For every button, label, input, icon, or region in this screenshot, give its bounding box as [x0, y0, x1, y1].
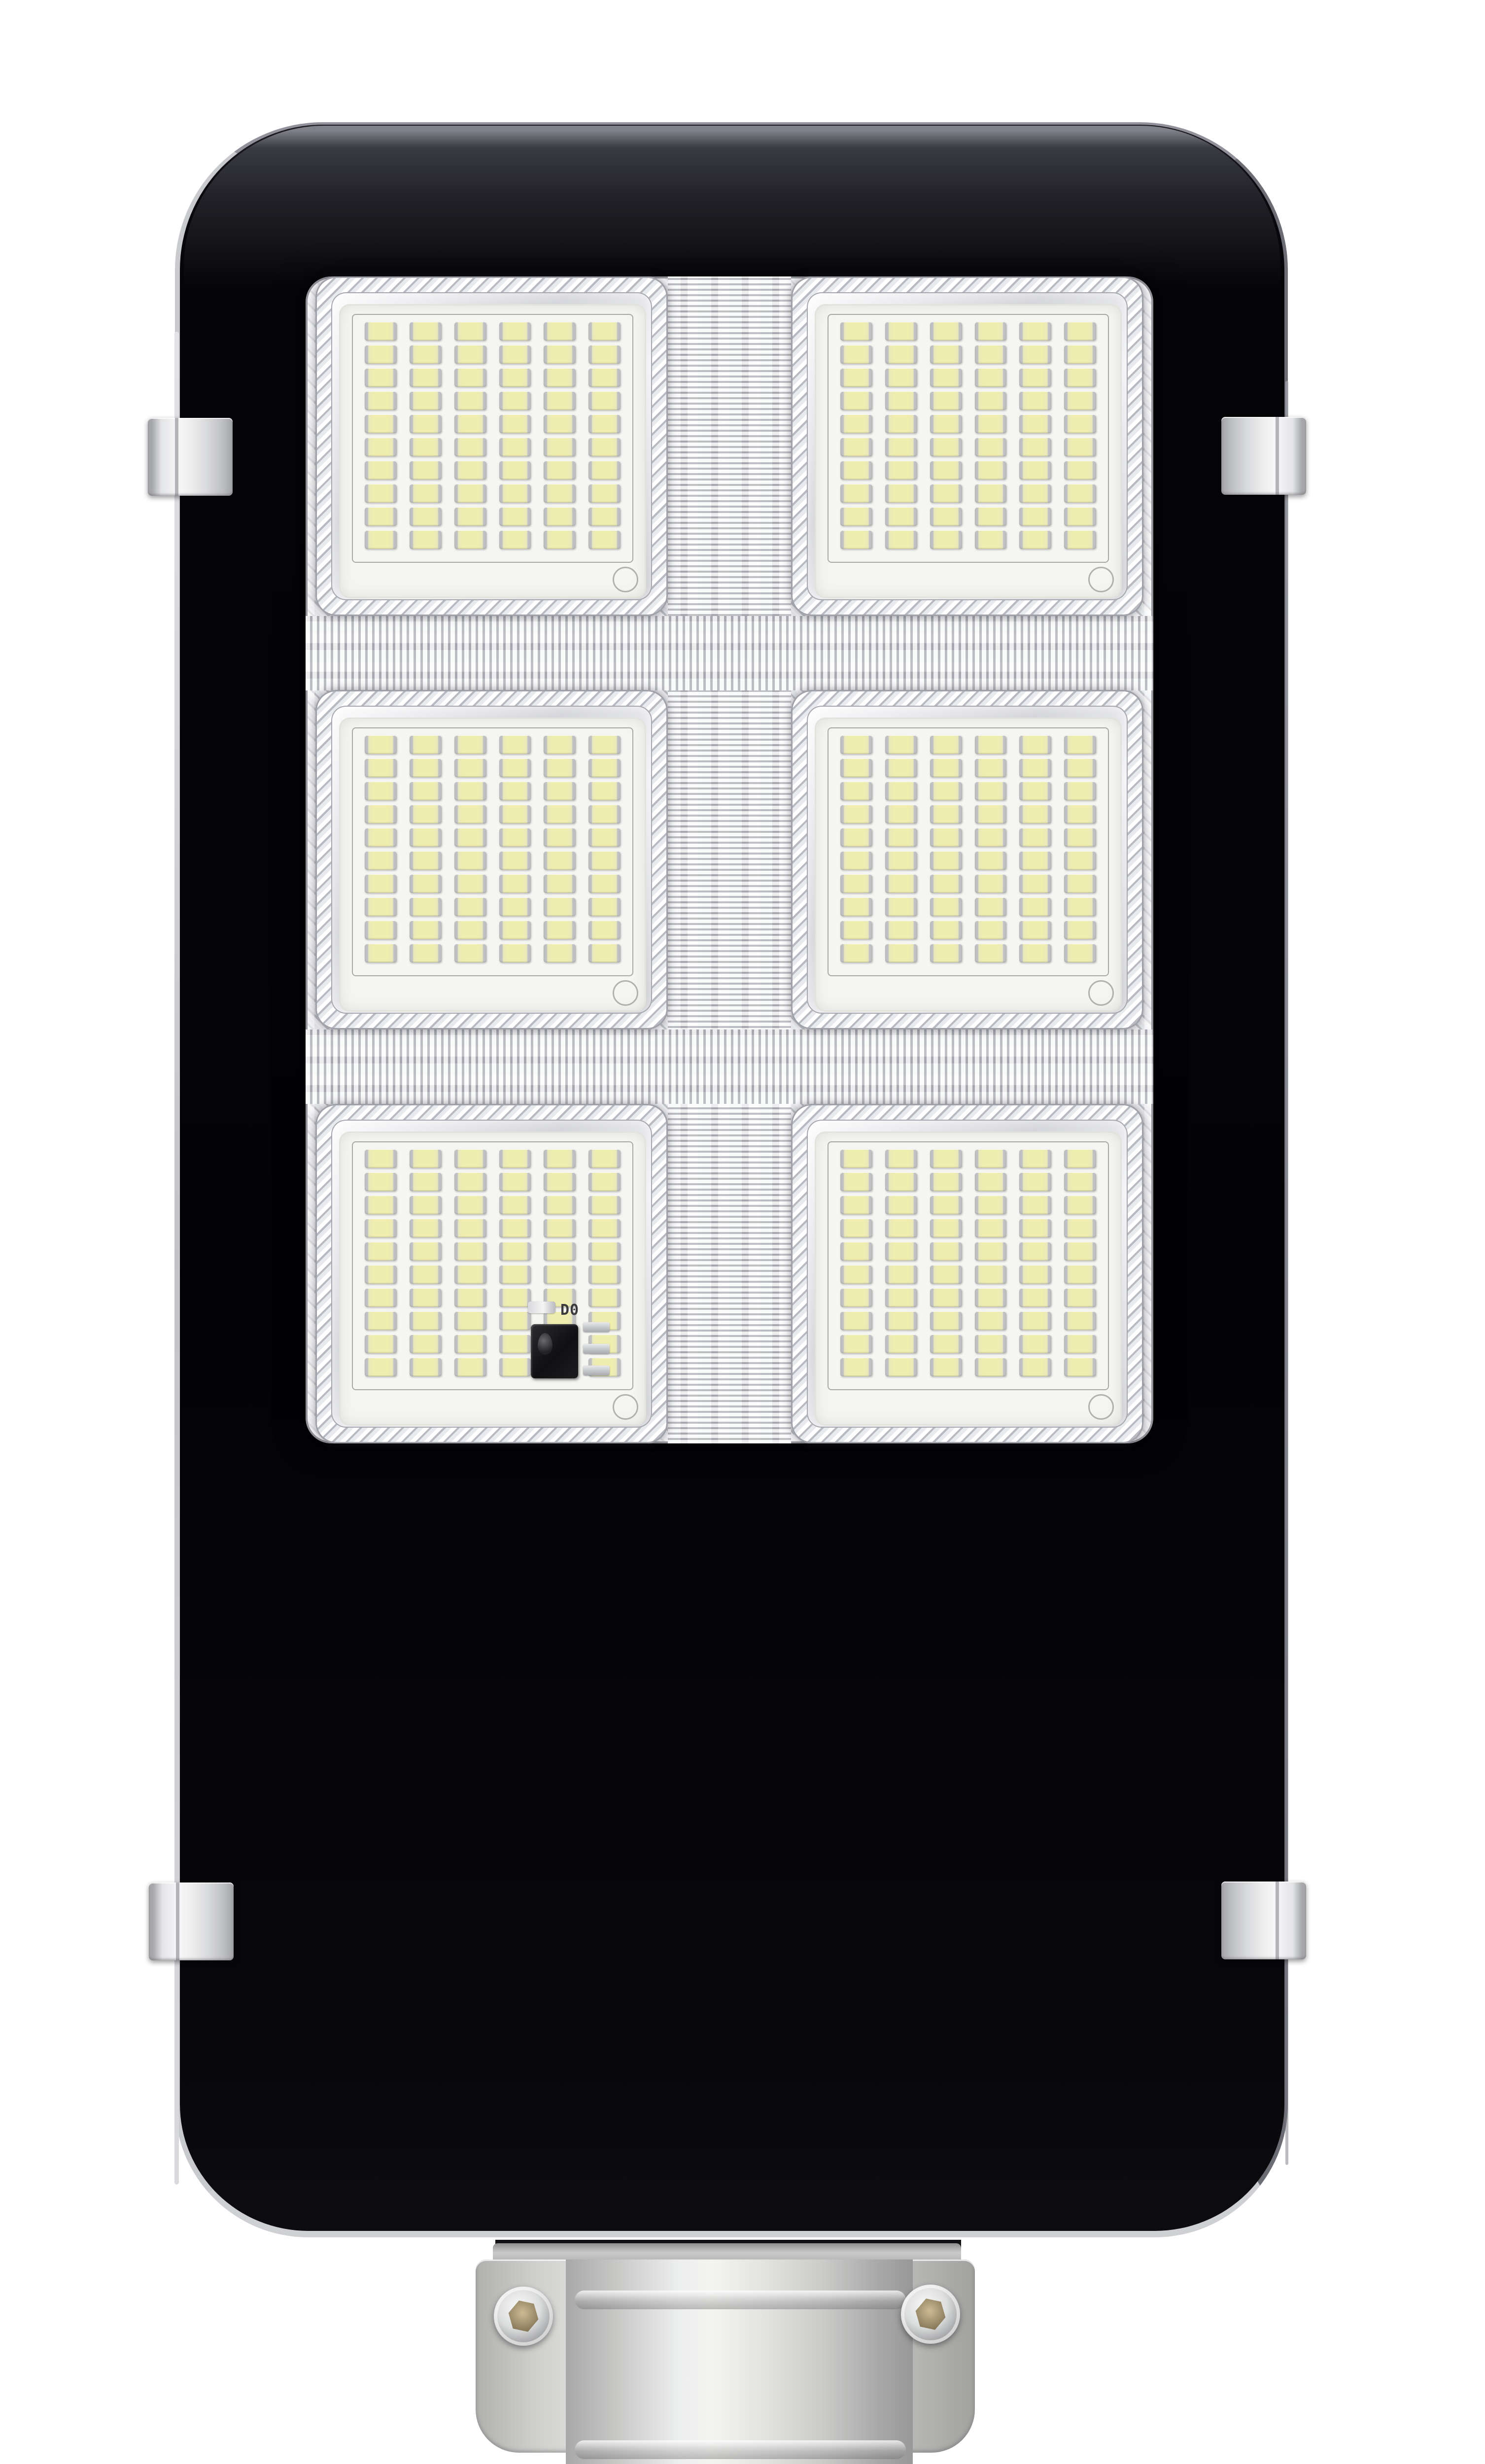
led-chip — [1019, 897, 1051, 916]
led-chip — [588, 1172, 621, 1191]
led-chip — [1064, 322, 1096, 341]
led-chip — [975, 944, 1007, 962]
led-chip — [544, 735, 576, 754]
led-chip — [1019, 1288, 1051, 1307]
led-chip — [588, 1196, 621, 1214]
pcb-mounting-hole — [1088, 1394, 1114, 1420]
led-chip — [930, 461, 962, 479]
led-chip — [544, 1149, 576, 1168]
hex-screw-top-right — [901, 2285, 960, 2344]
led-chip — [544, 805, 576, 823]
led-chip — [840, 391, 872, 410]
led-chip — [885, 782, 917, 800]
led-chip — [588, 414, 621, 433]
led-chip — [840, 345, 872, 364]
led-chip — [454, 1149, 486, 1168]
led-chip — [885, 1288, 917, 1307]
led-chip — [544, 461, 576, 479]
led-chip — [499, 1311, 531, 1330]
led-chip — [1019, 851, 1051, 870]
led-chip — [840, 735, 872, 754]
led-chip — [410, 1335, 442, 1353]
led-chip — [840, 414, 872, 433]
led-chip — [975, 735, 1007, 754]
led-chip — [1064, 414, 1096, 433]
led-chip — [410, 735, 442, 754]
led-chip — [975, 1172, 1007, 1191]
led-chip — [454, 1265, 486, 1284]
led-chip — [588, 758, 621, 777]
led-chip — [454, 897, 486, 916]
led-chip — [975, 782, 1007, 800]
led-chip — [1064, 1358, 1096, 1376]
led-chip — [365, 1311, 397, 1330]
led-chip — [499, 874, 531, 893]
led-chip — [975, 1311, 1007, 1330]
led-chip — [1019, 507, 1051, 526]
led-chip — [975, 921, 1007, 939]
led-chip — [454, 530, 486, 549]
led-chip — [499, 484, 531, 503]
led-chip — [499, 735, 531, 754]
led-chip — [975, 1288, 1007, 1307]
led-chip — [588, 391, 621, 410]
led-pcb — [815, 1131, 1122, 1426]
led-chip — [365, 438, 397, 456]
led-chip — [975, 1196, 1007, 1214]
led-chip — [365, 368, 397, 387]
led-chip — [885, 414, 917, 433]
led-chip — [588, 851, 621, 870]
led-chip — [410, 874, 442, 893]
led-chip — [930, 391, 962, 410]
led-chip — [544, 507, 576, 526]
led-chip — [1064, 1149, 1096, 1168]
led-chip — [885, 345, 917, 364]
led-chip — [975, 874, 1007, 893]
led-chip — [499, 1335, 531, 1353]
led-chip — [930, 897, 962, 916]
led-chip — [454, 944, 486, 962]
led-chip — [930, 1172, 962, 1191]
led-chip — [930, 921, 962, 939]
led-chip — [499, 758, 531, 777]
led-chip — [365, 391, 397, 410]
led-chip — [1064, 1172, 1096, 1191]
led-chip — [975, 1265, 1007, 1284]
led-chip — [885, 1265, 917, 1284]
led-chip — [930, 1288, 962, 1307]
led-chip — [454, 1335, 486, 1353]
led-chip — [840, 1242, 872, 1261]
led-chip — [499, 782, 531, 800]
led-chip — [454, 345, 486, 364]
led-chip — [365, 414, 397, 433]
led-chip — [840, 507, 872, 526]
led-chip — [930, 414, 962, 433]
led-chip — [499, 1288, 531, 1307]
led-chip — [588, 368, 621, 387]
led-chip — [499, 1172, 531, 1191]
led-chip — [1064, 1311, 1096, 1330]
led-chip — [885, 1335, 917, 1353]
led-chip — [365, 897, 397, 916]
led-chip — [454, 322, 486, 341]
pcb-mounting-hole — [1088, 980, 1114, 1006]
led-chip — [454, 391, 486, 410]
module-divider-vertical — [668, 276, 791, 1443]
led-chip — [975, 484, 1007, 503]
led-chip — [1019, 438, 1051, 456]
led-chip — [365, 782, 397, 800]
led-chip — [588, 322, 621, 341]
led-chip — [1019, 345, 1051, 364]
led-chip — [410, 828, 442, 847]
led-chip — [1064, 391, 1096, 410]
led-module-1-2 — [791, 276, 1143, 616]
led-chip — [588, 438, 621, 456]
led-chip — [975, 828, 1007, 847]
led-chip — [499, 1219, 531, 1237]
led-chip — [930, 1335, 962, 1353]
led-chip — [1064, 368, 1096, 387]
led-chip — [930, 322, 962, 341]
led-chip — [1064, 1265, 1096, 1284]
led-chip — [975, 897, 1007, 916]
led-chip — [365, 921, 397, 939]
led-chip — [410, 805, 442, 823]
led-chip — [840, 461, 872, 479]
led-chip — [410, 1149, 442, 1168]
led-chip — [975, 1358, 1007, 1376]
led-chip — [454, 507, 486, 526]
led-chip — [1019, 758, 1051, 777]
led-chip — [1064, 805, 1096, 823]
led-chip — [1064, 921, 1096, 939]
led-chip — [499, 438, 531, 456]
led-chip — [588, 530, 621, 549]
led-chip — [365, 1172, 397, 1191]
mounting-clip-bottom-right — [1221, 1882, 1306, 1959]
led-chip — [1019, 944, 1051, 962]
led-grid — [840, 322, 1096, 549]
led-chip — [410, 368, 442, 387]
led-chip — [1019, 391, 1051, 410]
led-chip — [454, 851, 486, 870]
led-chip — [885, 461, 917, 479]
led-chip — [1019, 368, 1051, 387]
led-chip — [840, 368, 872, 387]
led-chip — [544, 1172, 576, 1191]
led-chip — [410, 1358, 442, 1376]
led-chip — [499, 368, 531, 387]
led-chip — [885, 851, 917, 870]
led-chip — [930, 1265, 962, 1284]
led-chip — [840, 1335, 872, 1353]
led-chip — [454, 1288, 486, 1307]
led-chip — [975, 322, 1007, 341]
led-chip — [1019, 1335, 1051, 1353]
led-chip — [1019, 1219, 1051, 1237]
led-chip — [454, 1219, 486, 1237]
led-chip — [365, 322, 397, 341]
led-chip — [930, 1311, 962, 1330]
led-chip — [365, 1265, 397, 1284]
led-chip — [588, 484, 621, 503]
led-chip — [1019, 805, 1051, 823]
led-chip — [499, 1265, 531, 1284]
led-chip — [544, 1219, 576, 1237]
led-chip — [840, 1358, 872, 1376]
bracket-rib — [575, 2440, 906, 2459]
led-chip — [1019, 484, 1051, 503]
led-chip — [930, 1196, 962, 1214]
module-divider-horizontal — [306, 1029, 1153, 1104]
led-chip — [885, 507, 917, 526]
led-chip — [454, 758, 486, 777]
led-chip — [975, 851, 1007, 870]
led-chip — [930, 851, 962, 870]
led-chip — [499, 897, 531, 916]
led-chip — [1019, 1265, 1051, 1284]
led-chip — [588, 805, 621, 823]
led-chip — [840, 322, 872, 341]
led-chip — [365, 1196, 397, 1214]
led-chip — [885, 438, 917, 456]
led-chip — [544, 530, 576, 549]
led-chip — [975, 438, 1007, 456]
led-chip — [410, 461, 442, 479]
led-chip — [454, 1196, 486, 1214]
solder-pad — [528, 1301, 555, 1313]
led-chip — [410, 1311, 442, 1330]
led-chip — [544, 782, 576, 800]
mounting-clip-top-left — [148, 418, 233, 496]
led-module-2-1 — [315, 690, 668, 1029]
led-chip — [975, 414, 1007, 433]
led-chip — [410, 1172, 442, 1191]
led-chip — [454, 438, 486, 456]
led-chip — [454, 461, 486, 479]
led-chip — [840, 1288, 872, 1307]
led-chip — [1064, 1219, 1096, 1237]
led-chip — [588, 897, 621, 916]
led-chip — [975, 530, 1007, 549]
led-chip — [930, 758, 962, 777]
led-chip — [885, 874, 917, 893]
led-chip — [840, 805, 872, 823]
led-chip — [410, 921, 442, 939]
led-chip — [588, 782, 621, 800]
led-chip — [365, 828, 397, 847]
led-chip — [499, 1358, 531, 1376]
led-chip — [885, 322, 917, 341]
module-divider-horizontal — [306, 616, 1153, 690]
led-chip — [930, 805, 962, 823]
led-chip — [410, 851, 442, 870]
led-chip — [454, 1242, 486, 1261]
led-chip — [885, 1358, 917, 1376]
led-chip — [410, 1196, 442, 1214]
led-chip — [365, 507, 397, 526]
led-chip — [499, 461, 531, 479]
led-chip — [454, 1172, 486, 1191]
led-grid — [365, 322, 621, 549]
led-chip — [885, 530, 917, 549]
led-chip — [454, 921, 486, 939]
led-chip — [588, 507, 621, 526]
led-chip — [1019, 461, 1051, 479]
led-chip — [499, 828, 531, 847]
led-chip — [1064, 1335, 1096, 1353]
led-chip — [885, 805, 917, 823]
led-chip — [588, 874, 621, 893]
led-chip — [365, 944, 397, 962]
led-chip — [365, 758, 397, 777]
led-chip — [365, 874, 397, 893]
hex-socket-icon — [912, 2296, 949, 2332]
led-chip — [1064, 944, 1096, 962]
lamp-housing: D0 — [175, 122, 1288, 2237]
led-chip — [454, 782, 486, 800]
led-chip — [499, 805, 531, 823]
pcb-mounting-hole — [1088, 567, 1114, 592]
led-chip — [544, 874, 576, 893]
led-chip — [885, 1172, 917, 1191]
led-chip — [588, 345, 621, 364]
led-chip — [840, 897, 872, 916]
led-chip — [454, 484, 486, 503]
led-chip — [454, 1311, 486, 1330]
led-chip — [410, 484, 442, 503]
led-chip — [1064, 1288, 1096, 1307]
led-chip — [588, 1149, 621, 1168]
led-chip — [930, 507, 962, 526]
pcb-label-d0: D0 — [560, 1301, 579, 1319]
led-chip — [840, 782, 872, 800]
led-chip — [975, 507, 1007, 526]
mounting-clip-top-right — [1221, 417, 1306, 495]
led-chip — [365, 1242, 397, 1261]
led-chip — [365, 1358, 397, 1376]
led-chip — [885, 391, 917, 410]
led-chip — [1019, 921, 1051, 939]
led-chip — [499, 530, 531, 549]
led-chip — [499, 1196, 531, 1214]
led-module-1-1 — [315, 276, 668, 616]
led-chip — [499, 322, 531, 341]
led-chip — [885, 368, 917, 387]
led-chip — [454, 368, 486, 387]
led-grid — [365, 735, 621, 962]
led-chip — [930, 1242, 962, 1261]
led-chip — [840, 921, 872, 939]
led-chip — [930, 874, 962, 893]
led-chip — [930, 944, 962, 962]
led-chip — [1019, 1149, 1051, 1168]
led-chip — [544, 484, 576, 503]
led-chip — [1019, 1196, 1051, 1214]
led-chip — [930, 1358, 962, 1376]
led-chip — [975, 1149, 1007, 1168]
led-chip — [885, 1196, 917, 1214]
led-chip — [365, 461, 397, 479]
led-chip — [1019, 735, 1051, 754]
hex-screw-top-left — [494, 2287, 553, 2346]
led-chip — [1064, 507, 1096, 526]
led-chip — [365, 1149, 397, 1168]
driver-ic-assembly: D0 — [528, 1299, 631, 1397]
led-pcb — [339, 718, 646, 1012]
led-chip — [840, 1196, 872, 1214]
led-chip — [410, 345, 442, 364]
led-chip — [499, 391, 531, 410]
led-chip — [410, 322, 442, 341]
led-chip — [975, 461, 1007, 479]
led-chip — [975, 1242, 1007, 1261]
led-chip — [840, 874, 872, 893]
led-chip — [885, 1149, 917, 1168]
led-chip — [544, 1242, 576, 1261]
led-chip — [410, 944, 442, 962]
led-chip — [499, 1242, 531, 1261]
led-module-2-2 — [791, 690, 1143, 1029]
led-chip — [544, 322, 576, 341]
led-chip — [544, 758, 576, 777]
led-chip — [365, 735, 397, 754]
led-chip — [544, 391, 576, 410]
led-chip — [840, 438, 872, 456]
led-chip — [1019, 828, 1051, 847]
led-chip — [1019, 1172, 1051, 1191]
led-chip — [930, 1149, 962, 1168]
led-chip — [885, 1219, 917, 1237]
led-chip — [588, 1242, 621, 1261]
led-chip — [588, 921, 621, 939]
led-chip — [975, 1219, 1007, 1237]
led-chip — [499, 414, 531, 433]
led-chip — [930, 828, 962, 847]
led-pcb: D0 — [339, 1131, 646, 1426]
led-chip — [454, 735, 486, 754]
led-chip — [410, 1219, 442, 1237]
led-chip — [365, 1335, 397, 1353]
led-chip — [544, 921, 576, 939]
led-chip — [1064, 851, 1096, 870]
led-chip — [840, 1149, 872, 1168]
led-chip — [1064, 345, 1096, 364]
led-module-3-2 — [791, 1104, 1143, 1443]
led-chip — [1064, 874, 1096, 893]
led-chip — [1064, 782, 1096, 800]
led-chip — [840, 1219, 872, 1237]
led-chip — [885, 944, 917, 962]
led-chip — [544, 1196, 576, 1214]
led-chip — [544, 345, 576, 364]
led-chip — [1064, 897, 1096, 916]
led-chip — [1064, 758, 1096, 777]
led-chip — [885, 1242, 917, 1261]
led-chip — [885, 484, 917, 503]
led-chip — [885, 921, 917, 939]
led-chip — [1064, 735, 1096, 754]
led-chip — [499, 944, 531, 962]
pcb-mounting-hole — [613, 567, 638, 592]
led-chip — [544, 1265, 576, 1284]
led-chip — [840, 484, 872, 503]
led-chip — [365, 530, 397, 549]
led-chip — [840, 1265, 872, 1284]
